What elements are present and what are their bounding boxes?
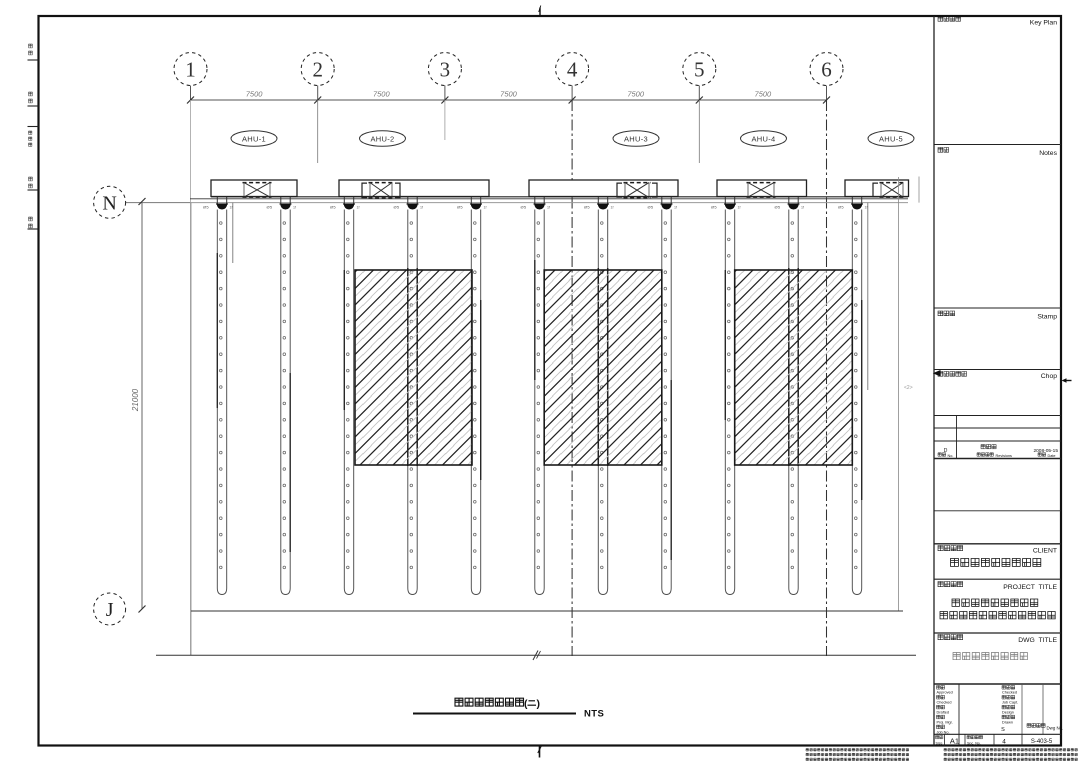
svg-text:AHU-1: AHU-1 xyxy=(242,135,266,144)
svg-text:7500: 7500 xyxy=(373,90,391,99)
svg-text:S: S xyxy=(1001,727,1005,733)
svg-text:): ) xyxy=(537,698,541,710)
svg-text:CLIENT: CLIENT xyxy=(1033,548,1057,555)
svg-text:5: 5 xyxy=(694,58,705,82)
svg-text:J: J xyxy=(106,599,114,621)
svg-text:Chop: Chop xyxy=(1041,373,1057,380)
svg-text:2: 2 xyxy=(312,58,323,82)
svg-text:Ø5: Ø5 xyxy=(648,205,654,210)
svg-text:Revisions: Revisions xyxy=(996,454,1013,458)
svg-text:Ø5: Ø5 xyxy=(775,205,781,210)
svg-text:Ø5: Ø5 xyxy=(521,205,527,210)
svg-text:1f: 1f xyxy=(801,206,804,210)
svg-text:PROJECT TITLE: PROJECT TITLE xyxy=(1003,584,1057,591)
svg-text:Size: Size xyxy=(936,742,943,746)
svg-text:Job Capt.: Job Capt. xyxy=(1002,701,1018,705)
svg-text:7500: 7500 xyxy=(246,90,264,99)
svg-text:Spc. No.: Spc. No. xyxy=(967,742,981,746)
svg-text:AHU-3: AHU-3 xyxy=(624,135,648,144)
svg-text:S-403-5: S-403-5 xyxy=(1031,739,1053,745)
svg-text:Drafted: Drafted xyxy=(937,711,949,715)
svg-text:Key Plan: Key Plan xyxy=(1030,20,1057,27)
svg-text:7500: 7500 xyxy=(627,90,645,99)
svg-text:4: 4 xyxy=(567,58,578,82)
svg-text:1f: 1f xyxy=(674,206,677,210)
svg-text:Stamp: Stamp xyxy=(1037,314,1057,321)
svg-text:1f: 1f xyxy=(357,206,360,210)
svg-text:Ø5: Ø5 xyxy=(584,205,590,210)
svg-text:DWG TITLE: DWG TITLE xyxy=(1018,637,1057,644)
svg-text:<2>: <2> xyxy=(904,385,913,391)
svg-text:7500: 7500 xyxy=(500,90,518,99)
svg-text:Notes: Notes xyxy=(1039,150,1057,157)
svg-text:AHU-5: AHU-5 xyxy=(879,135,903,144)
svg-text:Checked: Checked xyxy=(937,701,952,705)
svg-text:Approved: Approved xyxy=(937,691,953,695)
svg-text:1f: 1f xyxy=(611,206,614,210)
svg-text:3: 3 xyxy=(440,58,451,82)
svg-text:1f: 1f xyxy=(865,206,868,210)
svg-text:4: 4 xyxy=(1002,739,1006,746)
svg-text:AHU-4: AHU-4 xyxy=(751,135,775,144)
svg-text:7500: 7500 xyxy=(755,90,773,99)
svg-text:Ø5: Ø5 xyxy=(330,205,336,210)
svg-text:1: 1 xyxy=(185,58,196,82)
svg-text:Ø5: Ø5 xyxy=(267,205,273,210)
svg-text:1f: 1f xyxy=(230,206,233,210)
svg-text:A1: A1 xyxy=(950,737,959,746)
svg-text:Ø5: Ø5 xyxy=(838,205,844,210)
svg-text:1f: 1f xyxy=(738,206,741,210)
svg-text:1f: 1f xyxy=(547,206,550,210)
svg-text:Ø5: Ø5 xyxy=(203,205,209,210)
svg-text:Ø5: Ø5 xyxy=(711,205,717,210)
svg-text:No.: No. xyxy=(948,454,954,458)
svg-text:AHU-2: AHU-2 xyxy=(370,135,394,144)
svg-text:Drawn: Drawn xyxy=(1002,720,1013,724)
svg-text:(: ( xyxy=(524,698,528,710)
svg-text:Ø5: Ø5 xyxy=(394,205,400,210)
svg-text:1f: 1f xyxy=(420,206,423,210)
svg-text:N: N xyxy=(102,192,116,214)
svg-text:6: 6 xyxy=(821,58,832,82)
svg-text:1f: 1f xyxy=(484,206,487,210)
svg-text:Design: Design xyxy=(1002,711,1014,715)
svg-text:1f: 1f xyxy=(293,206,296,210)
svg-text:Dwg No.: Dwg No. xyxy=(1047,726,1064,731)
svg-text:Proj. Mgr.: Proj. Mgr. xyxy=(937,720,953,724)
svg-text:NTS: NTS xyxy=(584,709,604,720)
svg-text:Checked: Checked xyxy=(1002,691,1017,695)
svg-text:21000: 21000 xyxy=(131,388,140,412)
svg-text:Ø5: Ø5 xyxy=(457,205,463,210)
svg-text:Date: Date xyxy=(1048,454,1056,458)
